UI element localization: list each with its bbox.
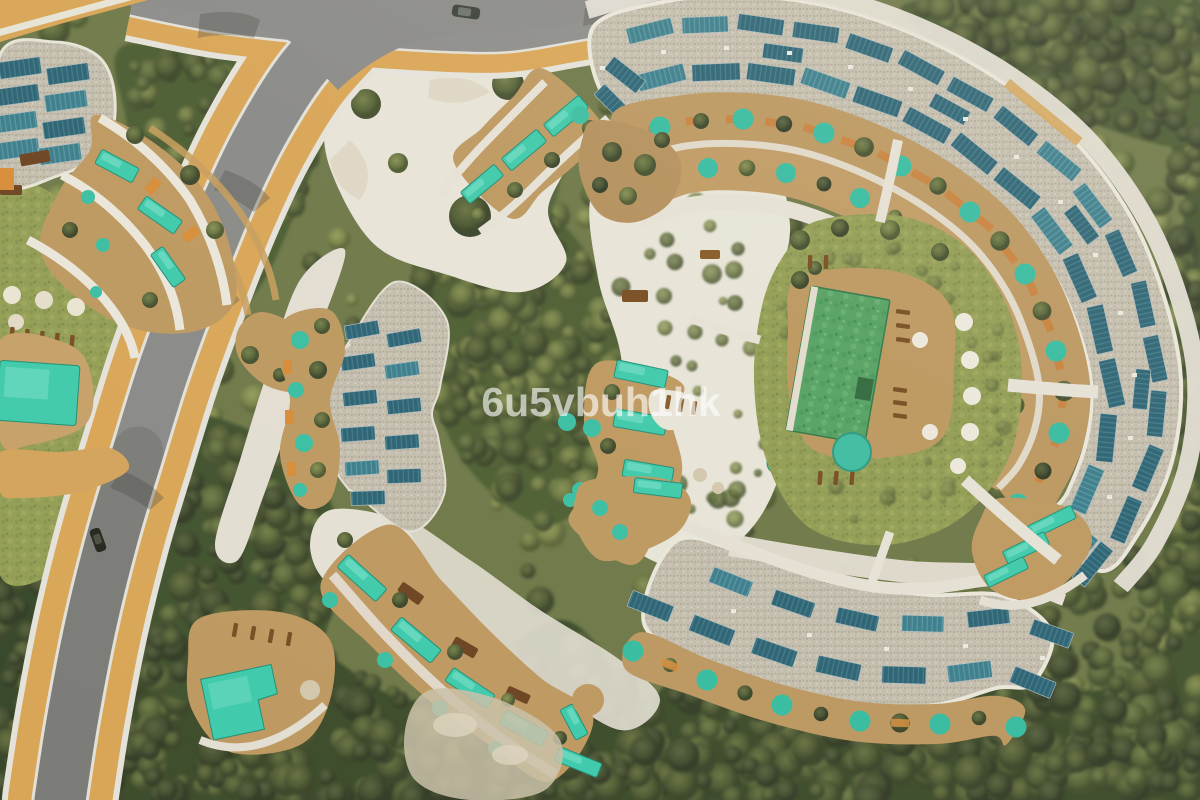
svg-text:6u5vbuh1hk: 6u5vbuh1hk: [481, 379, 720, 425]
